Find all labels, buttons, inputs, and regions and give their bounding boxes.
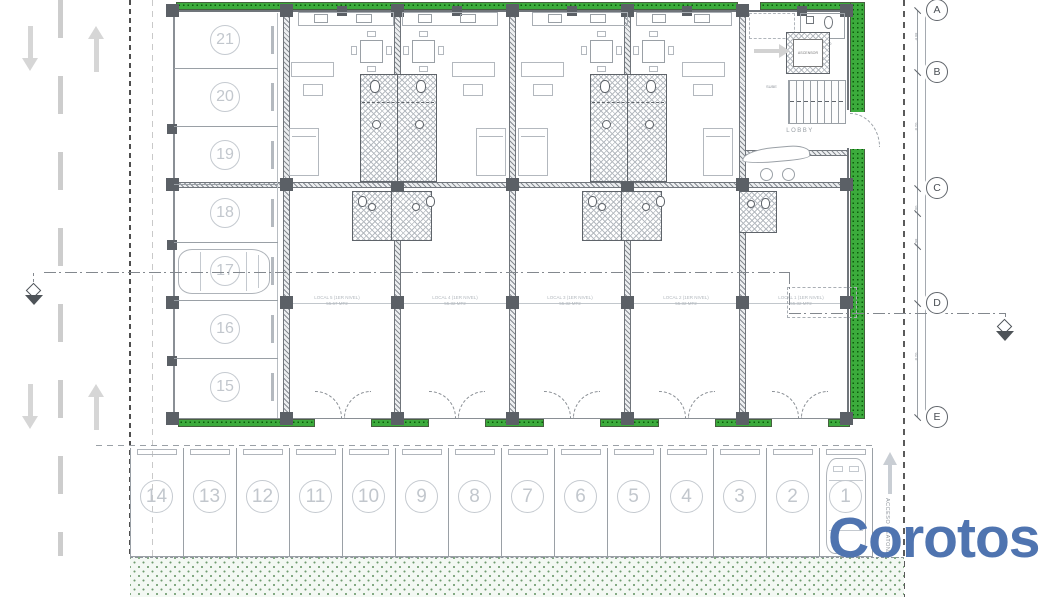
traffic-arrow-down-icon-shaft: [28, 384, 33, 418]
wheel-stop: [720, 449, 760, 455]
structural-column: [391, 296, 404, 309]
local-label: LOCAL 5 (1ER NIVEL)55.67 MT2: [289, 295, 385, 307]
parking-number: 20: [210, 82, 240, 112]
tv-stand: [533, 84, 553, 96]
wheel-stop: [826, 449, 866, 455]
bed-pillow-line: [706, 136, 730, 137]
wheel-stop: [349, 449, 389, 455]
sidewalk-dotted-strip: [130, 557, 904, 597]
structural-column: [621, 296, 634, 309]
core-divider-wall: [621, 191, 622, 241]
kitchen-sink: [314, 14, 328, 23]
structural-column: [506, 178, 519, 191]
sink-icon: [602, 120, 611, 129]
parking-stall-divider: [183, 448, 184, 556]
structural-column: [736, 178, 749, 191]
structural-column: [280, 412, 293, 425]
entrance-door-swing: [850, 113, 880, 147]
parking-stall-divider: [766, 448, 767, 556]
dimension-value: 4.08: [914, 27, 919, 47]
parking-number: 6: [564, 480, 597, 513]
chair: [581, 46, 587, 55]
local-area: 55.32 MT2: [638, 301, 734, 307]
wheel-stop: [190, 449, 230, 455]
wheel-stop: [271, 83, 274, 111]
parking-stall-divider: [174, 358, 278, 359]
dining-table: [642, 40, 665, 63]
section-line: [44, 272, 790, 273]
pedestrian-arrow-shaft: [888, 464, 892, 494]
section-line: [789, 313, 1006, 314]
dining-table: [360, 40, 383, 63]
traffic-arrow-up-icon-shaft: [94, 38, 99, 72]
tv-stand: [303, 84, 323, 96]
floor-plan-canvas: 1/2 BAÑOASCENSORSUBELOBBYLOCAL 5 (1ER NI…: [0, 0, 1052, 597]
parking-number: 21: [210, 25, 240, 55]
bed-pillow-line: [521, 136, 545, 137]
door-swing-left: [429, 391, 456, 418]
entry-arrow-icon: [779, 44, 790, 58]
parking-stall-divider: [236, 448, 237, 556]
sink-icon: [415, 120, 424, 129]
parking-number: 18: [210, 198, 240, 228]
wheel-stop: [508, 449, 548, 455]
parking-number: 3: [723, 480, 756, 513]
door-swing-left: [544, 391, 571, 418]
parking-aisle-dashed-line: [96, 445, 872, 446]
toilet-icon: [370, 80, 380, 93]
staircase: [788, 80, 846, 124]
parking-stall-divider: [174, 68, 278, 69]
local-label: LOCAL 2 (1ER NIVEL)55.32 MT2: [638, 295, 734, 307]
shower-divider: [362, 102, 434, 103]
toilet-icon: [426, 196, 435, 207]
right-wall-upper: [847, 10, 849, 110]
parking-stall-divider: [713, 448, 714, 556]
wheel-stop: [402, 449, 442, 455]
chair: [616, 46, 622, 55]
wheel-stop: [137, 449, 177, 455]
door-swing-right: [801, 391, 828, 418]
parking-number: 12: [246, 480, 279, 513]
parking-number: 16: [210, 314, 240, 344]
local-label: LOCAL 3 (1ER NIVEL)55.32 MT2: [522, 295, 618, 307]
wheel-stop: [243, 449, 283, 455]
chair: [386, 46, 392, 55]
dining-table: [590, 40, 613, 63]
green-planter-right: [850, 2, 865, 419]
section-marker-arrow-icon: [996, 331, 1014, 341]
chair: [668, 46, 674, 55]
sink-icon: [368, 203, 376, 211]
traffic-arrow-up-icon-shaft: [94, 396, 99, 430]
wheel-stop: [667, 449, 707, 455]
unit-dividing-wall: [283, 10, 290, 419]
kitchen-counter: [532, 12, 628, 26]
chair: [419, 66, 428, 72]
dimension-value: 8.20: [914, 347, 919, 367]
structural-column: [166, 4, 179, 17]
structural-column: [506, 296, 519, 309]
structural-column: [506, 4, 519, 17]
sink-icon: [598, 203, 606, 211]
wheel-stop: [271, 26, 274, 54]
kitchen-counter: [402, 12, 498, 26]
chair: [633, 46, 639, 55]
parking-number: 4: [670, 480, 703, 513]
console-table: [291, 62, 334, 77]
parking-stall-divider: [174, 126, 278, 127]
parking-stall-divider: [130, 448, 131, 556]
console-table: [682, 62, 725, 77]
wheel-stop: [271, 257, 274, 285]
wheel-stop: [773, 449, 813, 455]
structural-column: [736, 412, 749, 425]
stair-direction-line: [790, 101, 844, 102]
wheel-stop: [271, 315, 274, 343]
chair: [597, 66, 606, 72]
sidewalk-dashed-line: [152, 0, 153, 556]
structural-column: [280, 4, 293, 17]
local-area: 55.32 MT2: [522, 301, 618, 307]
grid-bubble: C: [926, 177, 948, 199]
parking-stall-divider: [174, 184, 278, 185]
door-swing-right: [688, 391, 715, 418]
structural-column: [166, 296, 179, 309]
kitchen-sink: [652, 14, 666, 23]
wheel-stop: [561, 449, 601, 455]
door-swing-left: [772, 391, 799, 418]
sink-icon: [412, 203, 420, 211]
chair: [649, 66, 658, 72]
section-line-jog: [789, 272, 790, 314]
toilet-icon: [600, 80, 610, 93]
kitchen-counter: [636, 12, 732, 26]
bed-pillow-line: [292, 136, 316, 137]
shower-divider: [592, 102, 664, 103]
lobby-label: LOBBY: [770, 128, 830, 134]
door-swing-right: [344, 391, 371, 418]
parking-number: 14: [140, 480, 173, 513]
local-area: 55.32 MT2: [407, 301, 503, 307]
traffic-arrow-up-icon: [88, 26, 104, 39]
structural-column: [506, 412, 519, 425]
wheel-stop: [455, 449, 495, 455]
car-seat: [849, 466, 859, 472]
unit-dividing-wall: [509, 10, 516, 419]
traffic-arrow-down-icon: [22, 58, 38, 71]
local-area: 55.67 MT2: [289, 301, 385, 307]
console-table: [452, 62, 495, 77]
structural-column: [840, 178, 853, 191]
parking-stall-divider: [395, 448, 396, 556]
sink-icon: [747, 200, 755, 208]
lobby-chair: [782, 168, 795, 181]
door-swing-right: [458, 391, 485, 418]
car-seat: [833, 466, 843, 472]
chair: [403, 46, 409, 55]
parking-number: 5: [617, 480, 650, 513]
stairs-up-label: SUBE: [766, 84, 777, 89]
door-swing-left: [659, 391, 686, 418]
structural-column: [736, 296, 749, 309]
toilet-icon: [646, 80, 656, 93]
entry-arrow-shaft: [754, 49, 780, 53]
chair: [438, 46, 444, 55]
parking-stall-divider: [174, 242, 278, 243]
sink-icon: [372, 120, 381, 129]
core-divider-wall: [397, 74, 398, 182]
chair: [367, 31, 376, 37]
sink-icon: [642, 203, 650, 211]
wheel-stop: [271, 141, 274, 169]
core-divider-wall: [391, 191, 392, 241]
parking-stall-divider: [342, 448, 343, 556]
tv-stand: [693, 84, 713, 96]
structural-column: [621, 412, 634, 425]
toilet-icon: [824, 16, 833, 29]
bed-pillow-line: [479, 136, 503, 137]
structural-column: [391, 412, 404, 425]
parking-number: 10: [352, 480, 385, 513]
grid-bubble: B: [926, 61, 948, 83]
chair: [351, 46, 357, 55]
wheel-stop: [271, 199, 274, 227]
chair: [597, 31, 606, 37]
parking-number: 19: [210, 140, 240, 170]
parking-stall-divider: [554, 448, 555, 556]
wheel-stop: [296, 449, 336, 455]
elevator-cab-label: ASCENSOR: [793, 39, 823, 67]
parking-number: 13: [193, 480, 226, 513]
kitchen-stove: [460, 14, 476, 23]
parking-stall-divider: [289, 448, 290, 556]
corotos-watermark: Corotos: [828, 510, 1039, 567]
toilet-icon: [416, 80, 426, 93]
kitchen-sink: [418, 14, 432, 23]
parking-number: 8: [458, 480, 491, 513]
toilet-icon: [588, 196, 597, 207]
local-label: LOCAL 4 (1ER NIVEL)55.32 MT2: [407, 295, 503, 307]
section-marker-arrow-icon: [25, 295, 43, 305]
kitchen-stove: [356, 14, 372, 23]
lane-divider-dashes: [58, 0, 63, 556]
traffic-arrow-down-icon: [22, 416, 38, 429]
kitchen-stove: [694, 14, 710, 23]
dimension-value: 4.98: [914, 233, 919, 253]
chair: [649, 31, 658, 37]
kitchen-counter: [298, 12, 394, 26]
parking-stall-divider: [660, 448, 661, 556]
parking-number: 9: [405, 480, 438, 513]
sink-icon: [645, 120, 654, 129]
dimension-value: 8.20: [914, 117, 919, 137]
tv-stand: [463, 84, 483, 96]
parking-stall-divider: [819, 448, 820, 556]
structural-column: [166, 412, 179, 425]
parking-stall-divider: [607, 448, 608, 556]
door-swing-left: [315, 391, 342, 418]
parking-stall-divider: [448, 448, 449, 556]
car-windshield-line: [829, 480, 863, 481]
parking-number: 2: [776, 480, 809, 513]
chair: [367, 66, 376, 72]
structural-column: [280, 178, 293, 191]
toilet-icon: [761, 198, 770, 209]
door-swing-right: [573, 391, 600, 418]
parking-number: 15: [210, 372, 240, 402]
chair: [419, 31, 428, 37]
parking-stall-divider: [174, 300, 278, 301]
console-table: [521, 62, 564, 77]
lobby-chair: [760, 168, 773, 181]
dining-table: [412, 40, 435, 63]
sink-icon: [806, 16, 814, 24]
pedestrian-arrow-up-icon: [883, 452, 897, 465]
green-planter-bottom: [178, 419, 315, 427]
kitchen-sink: [548, 14, 562, 23]
structural-column: [840, 412, 853, 425]
grid-bubble: D: [926, 292, 948, 314]
parking-number: 7: [511, 480, 544, 513]
structural-column: [736, 4, 749, 17]
reception-desk: [741, 144, 810, 165]
core-divider-wall: [627, 74, 628, 182]
toilet-icon: [358, 196, 367, 207]
dimension-value: 1.00: [914, 200, 919, 220]
traffic-arrow-up-icon: [88, 384, 104, 397]
grid-bubble: E: [926, 406, 948, 428]
parking-number: 11: [299, 480, 332, 513]
wheel-stop: [614, 449, 654, 455]
wheel-stop: [271, 373, 274, 401]
traffic-arrow-down-icon-shaft: [28, 26, 33, 60]
kitchen-stove: [590, 14, 606, 23]
parking-stall-divider: [501, 448, 502, 556]
grid-bubble: A: [926, 0, 948, 21]
bathroom-small: [739, 191, 777, 233]
toilet-icon: [656, 196, 665, 207]
